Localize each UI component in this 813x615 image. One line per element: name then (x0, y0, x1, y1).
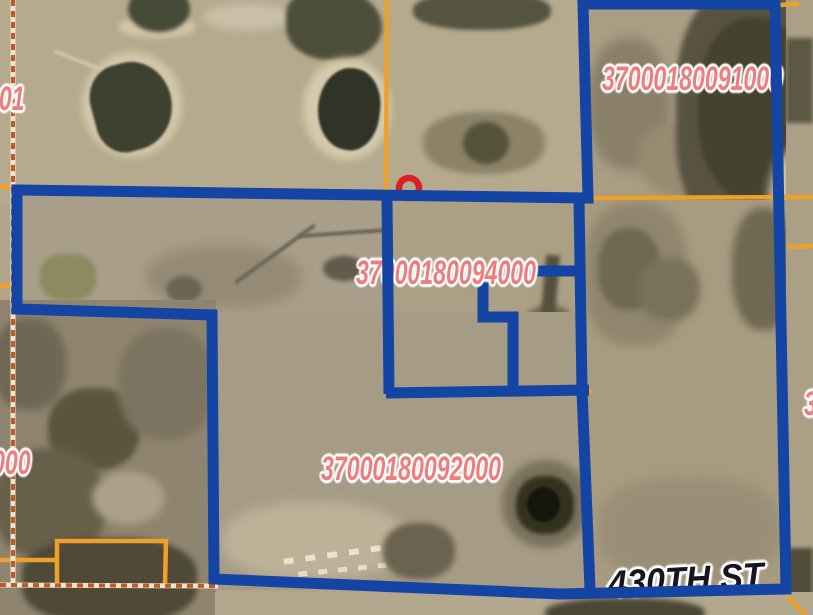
selected-parcels-boundary (17, 4, 786, 594)
map-canvas[interactable]: 001 37000180091000 37000180094000 370001… (0, 0, 813, 615)
selection-outline-layer (0, 0, 813, 615)
